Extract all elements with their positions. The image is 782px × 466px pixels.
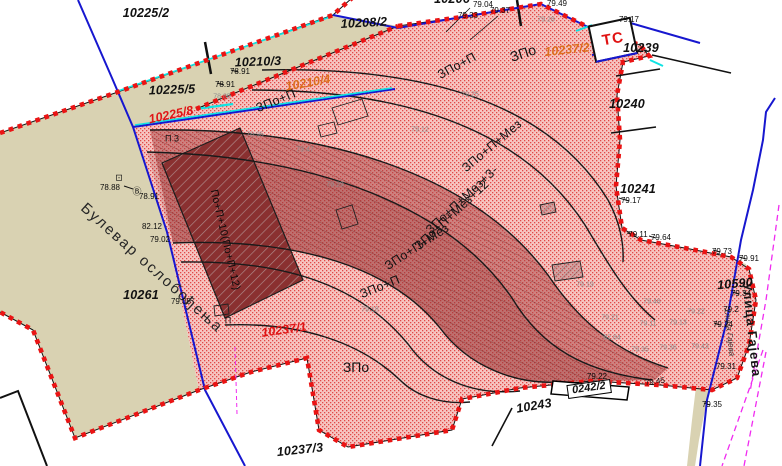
- transformer-station-box: [589, 18, 638, 62]
- map-canvas[interactable]: 10225/21020610208/210210/310225/510225/8…: [0, 0, 782, 466]
- building-footprint: [552, 261, 583, 281]
- map-drawing: [0, 0, 782, 466]
